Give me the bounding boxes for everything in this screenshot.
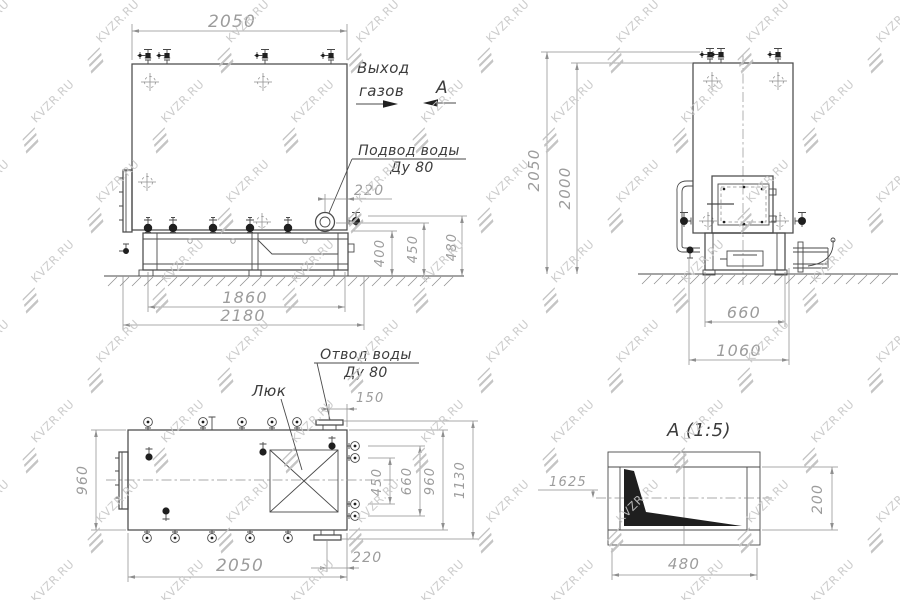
side-wall-valve	[347, 213, 360, 228]
dim-side-h-flange: 450	[406, 235, 421, 263]
dim-front-height-body: 2000	[556, 167, 574, 210]
detail-title: А (1:5)	[666, 420, 731, 441]
label-water-outlet-2: Ду 80	[343, 365, 388, 381]
dim-side-base-outer: 2180	[220, 306, 266, 325]
front-view: 2050 2000 660 1060	[525, 49, 898, 366]
label-water-outlet-1: Отвод воды	[320, 347, 412, 363]
plan-left-flange	[115, 452, 128, 509]
label-gas-outlet-2: газов	[359, 82, 404, 100]
dim-plan-outlet-bottom-offset: 220	[352, 550, 382, 566]
water-outlet-flange-top	[316, 420, 343, 430]
burner-assembly	[793, 238, 835, 272]
center-mark	[141, 73, 159, 91]
label-water-inlet-1: Подвод воды	[358, 143, 460, 159]
dim-side-base-inner: 1860	[222, 288, 268, 307]
dim-detail-width: 480	[668, 555, 700, 573]
view-direction-arrow	[423, 99, 456, 106]
hatch-opening	[270, 450, 338, 512]
dim-plan-outlet-offset: 150	[356, 391, 384, 406]
dim-front-overall-width: 1060	[716, 341, 762, 360]
base-frame	[119, 233, 354, 276]
dim-side-flange-offset: 220	[354, 183, 384, 199]
plan-view: Люк Отвод воды Ду 80 150 960 450 660 960…	[75, 347, 478, 582]
dim-detail-callout: 1625	[549, 475, 587, 490]
dim-side-h-valve: 480	[445, 233, 460, 261]
dim-detail-height: 200	[810, 484, 826, 514]
weld-seam	[624, 469, 742, 526]
gas-flow-arrow	[356, 100, 398, 107]
dim-front-base-width: 660	[727, 303, 761, 322]
water-inlet-flange	[316, 213, 335, 232]
dim-plan-depth-right: 960	[423, 467, 438, 495]
label-water-inlet-2: Ду 80	[389, 160, 434, 176]
technical-drawing: 2050 Выход газов А Подвод воды Ду 80 220	[0, 0, 900, 600]
dim-side-width-top: 2050	[208, 12, 256, 32]
dim-plan-stubs-outer: 660	[400, 467, 415, 495]
label-hatch: Люк	[251, 382, 286, 400]
detail-a-view: А (1:5) 1625 200 480	[538, 420, 838, 580]
view-marker-A: А	[435, 78, 448, 98]
dim-plan-overall-right: 1130	[453, 461, 468, 499]
water-outlet-flange-bottom	[314, 530, 341, 540]
label-gas-outlet-1: Выход	[357, 59, 410, 77]
front-base	[703, 233, 787, 275]
dim-plan-stubs-inner: 450	[370, 468, 385, 496]
side-left-flange	[119, 170, 132, 232]
dim-front-height-total: 2050	[525, 149, 543, 192]
drawing-canvas: 2050 Выход газов А Подвод воды Ду 80 220	[0, 0, 900, 600]
dim-side-h-base: 400	[373, 239, 388, 267]
dim-plan-depth-left: 960	[75, 465, 91, 495]
side-view: 2050 Выход газов А Подвод воды Ду 80 220	[104, 12, 467, 330]
furnace-door	[707, 176, 776, 233]
dim-plan-length: 2050	[216, 556, 264, 576]
